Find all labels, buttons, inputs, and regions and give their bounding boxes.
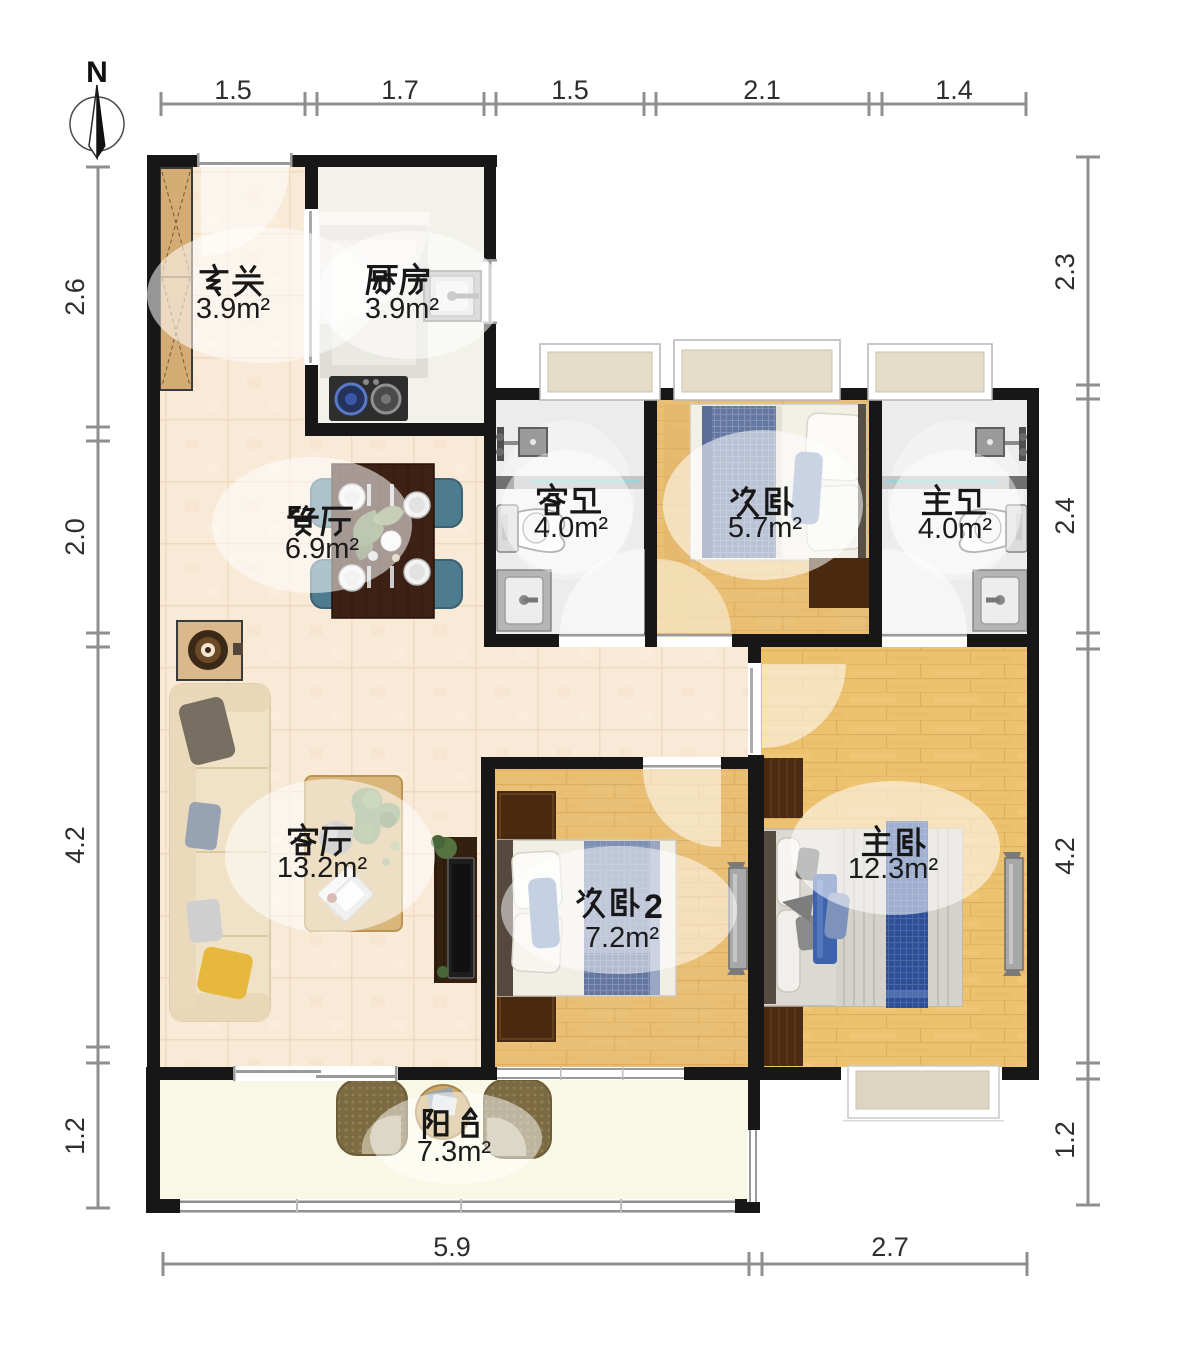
svg-text:2.1: 2.1 [743,75,781,105]
svg-text:7.2m²: 7.2m² [585,922,659,954]
svg-text:1.5: 1.5 [214,75,252,105]
svg-text:1.7: 1.7 [381,75,419,105]
svg-text:4.2: 4.2 [60,826,90,864]
svg-text:4.0m²: 4.0m² [918,513,992,545]
svg-text:2.3: 2.3 [1050,253,1080,291]
svg-text:7.3m²: 7.3m² [417,1136,491,1168]
svg-text:4.0m²: 4.0m² [534,512,608,544]
svg-text:5.9: 5.9 [433,1232,471,1262]
svg-text:1.2: 1.2 [60,1117,90,1155]
svg-text:1.4: 1.4 [935,75,973,105]
svg-text:12.3m²: 12.3m² [848,853,939,885]
svg-text:3.9m²: 3.9m² [365,293,439,325]
svg-text:1.2: 1.2 [1050,1121,1080,1159]
svg-text:6.9m²: 6.9m² [285,533,359,565]
svg-text:2: 2 [644,888,663,926]
svg-text:2.6: 2.6 [60,278,90,316]
svg-text:N: N [86,56,108,89]
svg-text:2.7: 2.7 [871,1232,909,1262]
svg-text:2.0: 2.0 [60,518,90,556]
svg-text:13.2m²: 13.2m² [277,852,368,884]
svg-text:5.7m²: 5.7m² [728,512,802,544]
svg-text:3.9m²: 3.9m² [196,293,270,325]
svg-text:2.4: 2.4 [1050,497,1080,535]
svg-text:4.2: 4.2 [1050,837,1080,875]
svg-text:1.5: 1.5 [551,75,589,105]
